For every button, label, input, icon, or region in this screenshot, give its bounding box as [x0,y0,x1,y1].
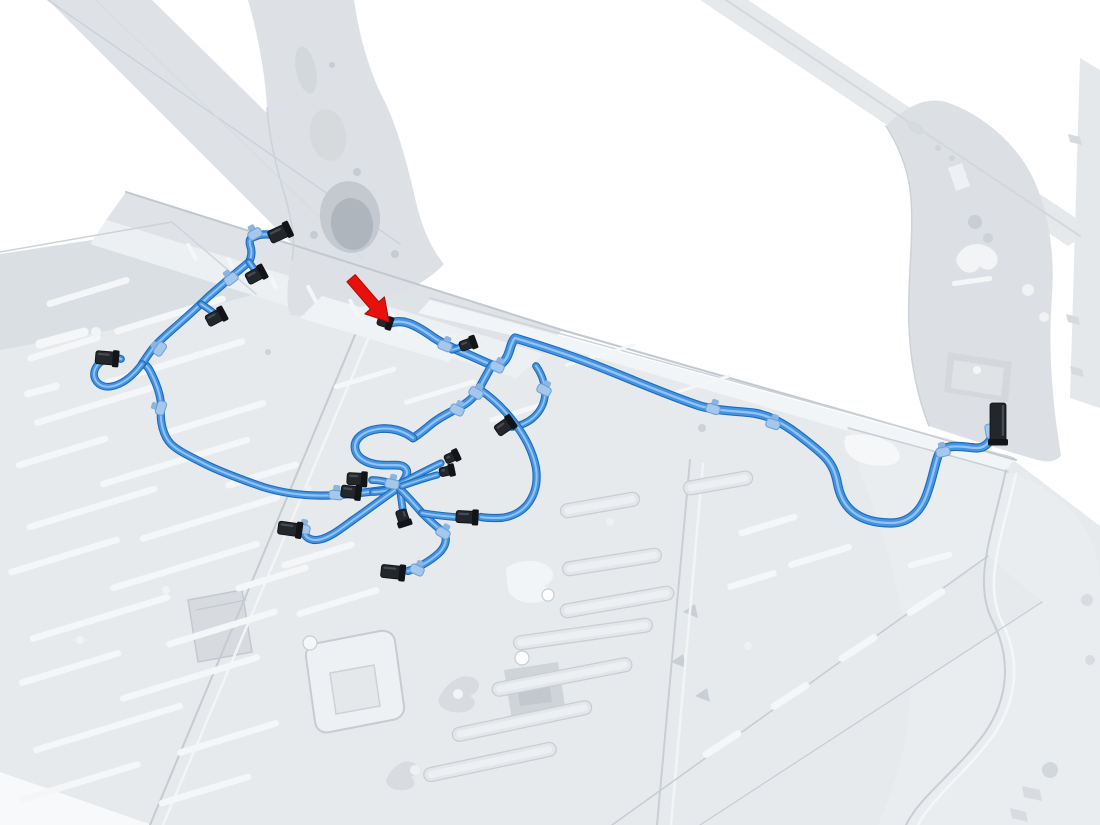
harness-routing-illustration [0,0,1100,825]
floor-hole [542,589,554,601]
floor-hole [983,233,993,243]
floor-hole [698,424,706,432]
floor-hole [949,155,955,161]
floor-hole [1085,655,1095,665]
floor-hole [1039,312,1049,322]
connector-highlight [349,475,358,478]
illustration-canvas [0,0,1100,825]
harness-connector [988,403,1008,446]
floor-hole [606,518,614,526]
floor-hole [76,636,84,644]
floor-hole [1081,594,1093,606]
pillar-hole [391,250,399,258]
floor-hole [973,366,981,374]
floor-hole [968,215,982,229]
floor-hole [744,642,752,650]
connector-head [988,439,1008,446]
floor-hole [265,349,271,355]
connector-head [361,471,368,487]
floor-hole [453,689,463,699]
connector-highlight [1002,405,1004,436]
body-panel [330,665,380,714]
connector-head [472,509,479,525]
floor-hole [162,586,170,594]
floor-hole [303,636,317,650]
pillar-hole [310,231,318,239]
floor-hole [935,145,941,151]
floor-hole [410,765,420,775]
floor-hole [515,651,529,665]
pillar-hole [329,62,335,68]
floor-hole [1022,284,1034,296]
floor-hole [1042,762,1058,778]
pillar-hole [353,168,361,176]
floor-hole [91,327,101,337]
